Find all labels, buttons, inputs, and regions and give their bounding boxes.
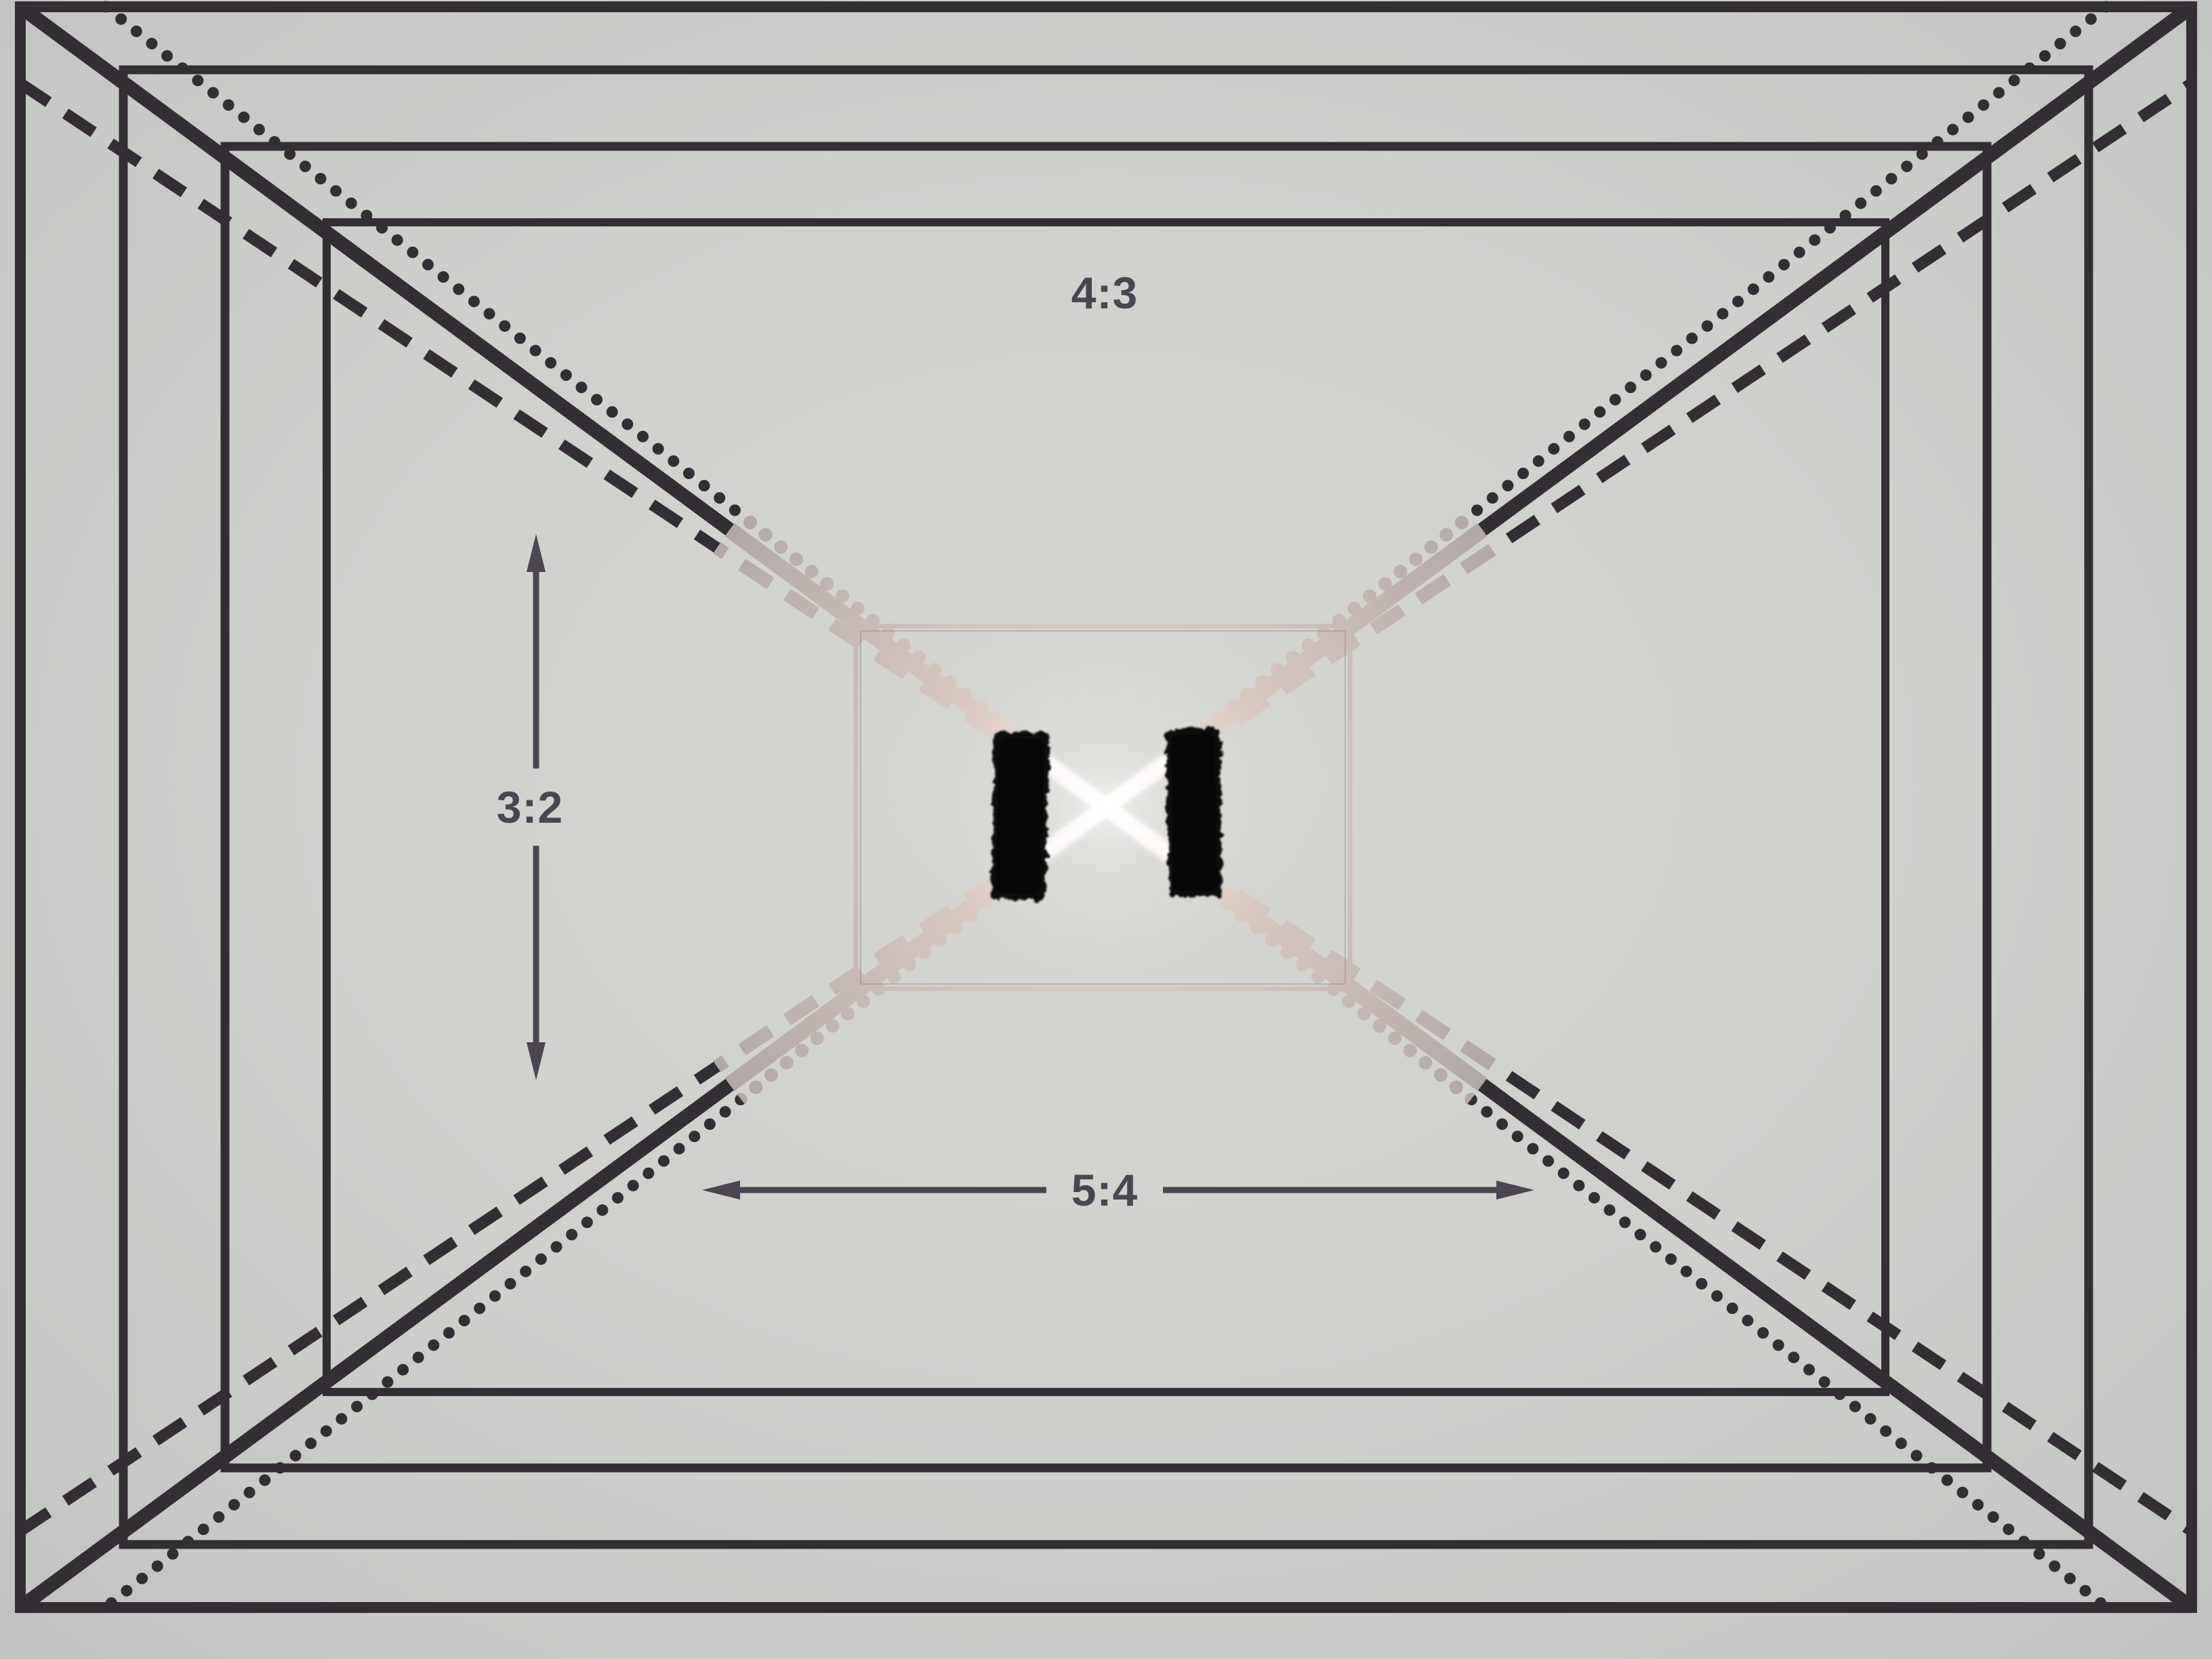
ratio-label-3-2: 3:2 [497,782,563,832]
ratio-label-5-4: 5:4 [1071,1165,1138,1215]
test-chart-photo: 4:3 3:2 5:4 [0,0,2212,1659]
ratio-label-4-3: 4:3 [1071,268,1138,318]
velcro-patch-left-core [996,738,1044,894]
aspect-ratio-test-chart: 4:3 3:2 5:4 [0,0,2212,1659]
velcro-patch-right-core [1171,734,1217,890]
